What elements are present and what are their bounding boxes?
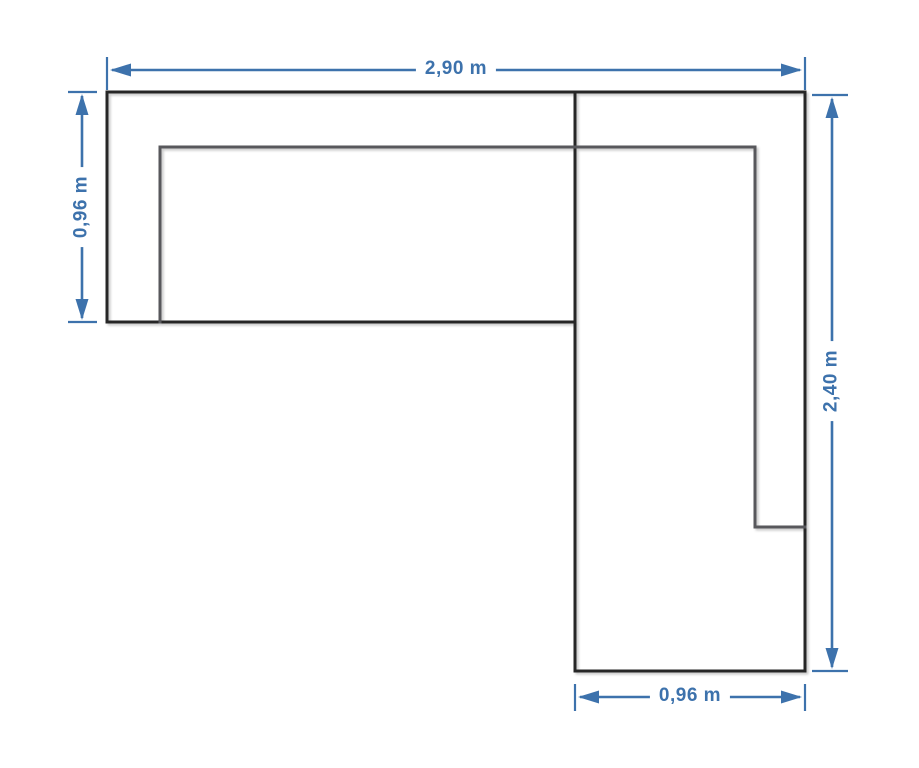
arrow-left-icon xyxy=(578,691,599,704)
arrow-left-icon xyxy=(110,64,131,77)
arrow-down-icon xyxy=(76,299,89,320)
dimension-label-right-length: 2,40 m xyxy=(822,341,843,421)
sofa-outline xyxy=(107,92,805,671)
dimension-label-top-width: 2,90 m xyxy=(416,59,496,80)
seat-inner-line xyxy=(160,147,805,527)
arrow-right-icon xyxy=(781,691,802,704)
arrow-up-icon xyxy=(76,94,89,115)
plan-drawing xyxy=(0,0,919,768)
arrow-up-icon xyxy=(826,97,839,118)
arrow-down-icon xyxy=(826,648,839,669)
dimension-label-bottom-width: 0,96 m xyxy=(650,686,730,707)
sofa-plan-diagram: 2,90 m 0,96 m 2,40 m 0,96 m xyxy=(0,0,919,768)
dimension-label-left-depth: 0,96 m xyxy=(72,167,93,247)
arrow-right-icon xyxy=(781,64,802,77)
